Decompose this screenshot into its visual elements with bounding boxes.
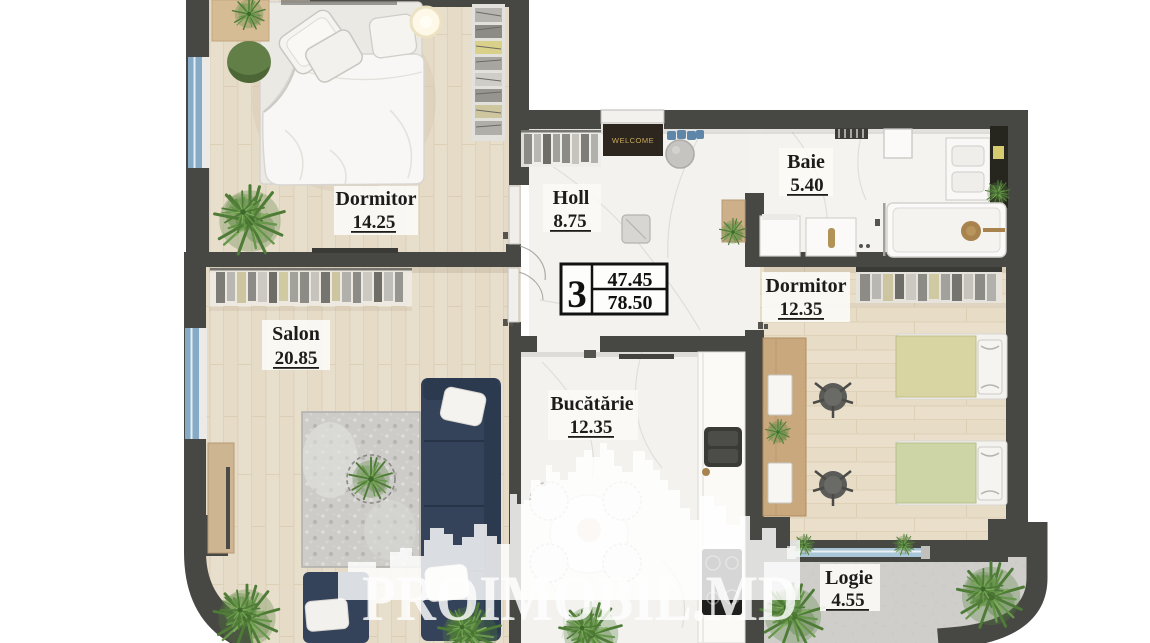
svg-text:20.85: 20.85 — [275, 348, 318, 369]
svg-text:47.45: 47.45 — [608, 269, 653, 291]
svg-text:5.40: 5.40 — [790, 175, 823, 196]
svg-text:Dormitor: Dormitor — [765, 275, 846, 297]
svg-text:WELCOME: WELCOME — [612, 136, 654, 145]
svg-text:Logie: Logie — [825, 567, 873, 589]
svg-text:12.35: 12.35 — [570, 417, 613, 438]
svg-text:Salon: Salon — [272, 323, 320, 345]
svg-text:Baie: Baie — [787, 151, 825, 173]
svg-text:Holl: Holl — [553, 187, 590, 209]
svg-text:Bucătărie: Bucătărie — [550, 393, 633, 415]
svg-text:8.75: 8.75 — [553, 211, 586, 232]
svg-text:Dormitor: Dormitor — [335, 188, 416, 210]
svg-text:14.25: 14.25 — [353, 212, 396, 233]
svg-text:3: 3 — [567, 273, 587, 316]
svg-text:78.50: 78.50 — [608, 292, 653, 314]
svg-text:4.55: 4.55 — [831, 590, 864, 611]
svg-text:12.35: 12.35 — [780, 299, 823, 320]
svg-text:PROIMOBIL.MD: PROIMOBIL.MD — [362, 563, 798, 635]
